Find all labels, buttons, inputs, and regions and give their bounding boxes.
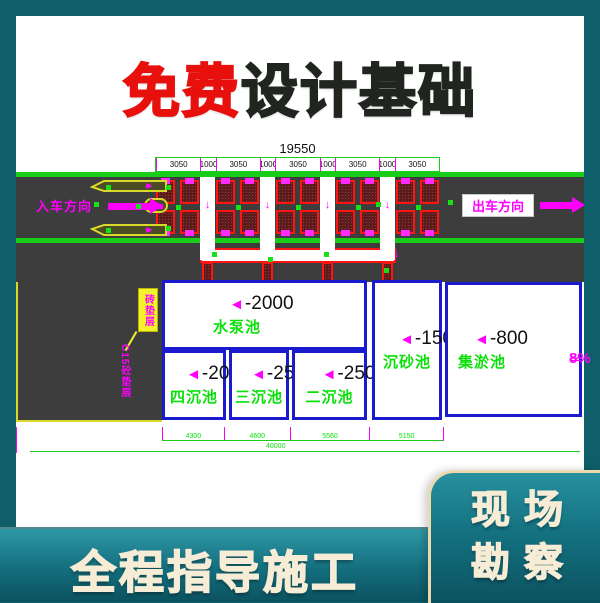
pier-block: [216, 180, 235, 204]
down-arrow-icon: ↓: [200, 199, 215, 211]
dim-segment-label: 3050: [276, 158, 320, 171]
pier-block: [276, 180, 295, 204]
green-mark: [416, 205, 421, 210]
dim-segment-label: 3050: [217, 158, 261, 171]
pier-pad: [221, 178, 230, 184]
depth-marker-icon: ◄: [474, 331, 489, 348]
green-mark: [166, 185, 171, 190]
green-mark: [106, 228, 111, 233]
dim-segment-label: 3050: [156, 158, 201, 171]
green-mark: [296, 205, 301, 210]
green-mark: [136, 204, 141, 209]
dim-segment-label: 5150: [369, 427, 443, 440]
pier-foundation-group: [395, 177, 440, 238]
pool-name: 水泵池: [213, 316, 261, 337]
pool-name: 集淤池: [458, 351, 506, 372]
pier-block: [180, 180, 199, 204]
green-mark: [384, 268, 389, 273]
pier-pad: [305, 178, 314, 184]
pier-pad: [401, 178, 410, 184]
concrete-cushion-text: C15砼垫层: [117, 344, 132, 398]
pool-depth: -800: [490, 328, 528, 350]
dimension-tick: [443, 427, 444, 441]
pool-sludge: ◄-800 集淤池 ⇐8%: [445, 282, 582, 417]
green-mark: [448, 200, 453, 205]
site-survey-badge: 现场 勘察: [428, 470, 600, 603]
pier-block: [180, 210, 199, 234]
entry-direction-label: 入车方向: [36, 196, 92, 215]
depth-marker-icon: ◄: [251, 366, 266, 383]
down-arrow-icon: ↓: [320, 199, 335, 211]
pool-pump: ◄-2000 水泵池: [162, 280, 367, 350]
pier-foundation-group: [275, 177, 320, 238]
pier-block: [360, 210, 379, 234]
dim-segment-label: 3050: [336, 158, 380, 171]
entry-arrow-icon: [108, 203, 150, 210]
overall-top-dimension: 19550: [155, 141, 440, 156]
brick-cushion-callout: 砖垫层: [138, 288, 158, 332]
pier-pad: [221, 230, 230, 236]
pier-pad: [245, 178, 254, 184]
badge-line1: 现场: [457, 485, 577, 538]
pier-block: [396, 210, 415, 234]
pier-pad: [425, 230, 434, 236]
bottom-dimension-chain: 4300460055605150: [162, 427, 443, 441]
traffic-island-bottom: [90, 223, 168, 237]
green-mark: [356, 205, 361, 210]
footer-slogan: 全程指导施工: [0, 536, 430, 601]
exit-arrow-icon: [540, 202, 572, 209]
dim-segment-label: 1000: [380, 158, 395, 171]
green-mark: [94, 202, 99, 207]
down-arrow-icon: ↓: [260, 199, 275, 211]
top-dimension-chain: 305010003050100030501000305010003050: [155, 157, 440, 172]
pier-pad: [245, 230, 254, 236]
pier-block: [396, 180, 415, 204]
pier-pad: [305, 230, 314, 236]
pier-pad: [185, 178, 194, 184]
pool-name: 四沉池: [170, 386, 218, 407]
drain-channel: ↓: [200, 177, 215, 260]
pier-block: [300, 180, 319, 204]
title-rest: 设计基础: [241, 60, 477, 124]
title-highlight: 免费: [123, 60, 241, 124]
pier-block: [420, 180, 439, 204]
drain-channel: ↓: [320, 177, 335, 260]
pier-block: [336, 210, 355, 234]
pier-pad: [365, 230, 374, 236]
pier-block: [216, 210, 235, 234]
pier-foundation-group: [335, 177, 380, 238]
green-mark: [268, 257, 273, 262]
pool-name: 三沉池: [235, 386, 283, 407]
drain-stub: [322, 262, 333, 282]
pier-pad: [401, 230, 410, 236]
pool-depth: -2000: [245, 293, 294, 315]
depth-marker-icon: ◄: [322, 366, 337, 383]
dim-segment-label: 4600: [224, 427, 290, 440]
depth-marker-icon: ◄: [186, 366, 201, 383]
pier-pad: [281, 230, 290, 236]
pier-pad: [365, 178, 374, 184]
pool-fourth-settling: ◄-2000 四沉池: [162, 350, 226, 420]
pier-pad: [425, 178, 434, 184]
cad-site-plan: 19550 3050100030501000305010003050100030…: [16, 140, 584, 470]
dim-segment-label: 1000: [261, 158, 276, 171]
pier-block: [360, 180, 379, 204]
green-mark: [324, 252, 329, 257]
dim-segment-label: 1000: [201, 158, 216, 171]
pier-block: [336, 180, 355, 204]
drain-channel: ↓: [260, 177, 275, 260]
pier-pad: [341, 178, 350, 184]
drain-stub: [262, 262, 273, 282]
brick-cushion-text: 砖垫层: [141, 294, 156, 327]
pier-block: [240, 180, 259, 204]
pool-name: 沉砂池: [383, 351, 431, 372]
dim-segment-label: 4300: [162, 427, 224, 440]
pool-grit: ◄-1500 沉砂池: [372, 280, 442, 420]
depth-marker-icon: ◄: [399, 331, 414, 348]
pier-pad: [281, 178, 290, 184]
drain-flow-arrow-icon: ↓: [393, 245, 400, 260]
dim-segment-label: 5560: [290, 427, 370, 440]
pier-block: [420, 210, 439, 234]
badge-line2: 勘察: [457, 538, 577, 591]
green-mark: [106, 185, 111, 190]
pier-pad: [341, 230, 350, 236]
green-mark: [212, 252, 217, 257]
green-mark: [176, 205, 181, 210]
overall-bottom-dimension-line: [30, 451, 580, 452]
green-mark: [236, 205, 241, 210]
dimension-tick: [16, 427, 17, 453]
down-arrow-icon: ↓: [380, 199, 395, 211]
page-title: 免费设计基础: [0, 46, 600, 128]
pool-name: 二沉池: [305, 386, 353, 407]
green-mark: [376, 202, 381, 207]
pier-block: [276, 210, 295, 234]
green-mark: [166, 226, 171, 231]
exit-direction-label: 出车方向: [462, 194, 534, 217]
overall-bottom-dimension: 40000: [266, 443, 285, 450]
depth-marker-icon: ◄: [229, 296, 244, 313]
drain-stub: [202, 262, 213, 282]
dim-segment-label: 1000: [321, 158, 336, 171]
pier-pad: [185, 230, 194, 236]
pier-block: [240, 210, 259, 234]
pool-third-settling: ◄-2500 三沉池: [229, 350, 289, 420]
pier-foundation-group: [215, 177, 260, 238]
traffic-island-top: [90, 179, 168, 193]
pool-second-settling: ◄-2500 二沉池: [292, 350, 367, 420]
dim-segment-label: 3050: [396, 158, 439, 171]
pier-block: [300, 210, 319, 234]
